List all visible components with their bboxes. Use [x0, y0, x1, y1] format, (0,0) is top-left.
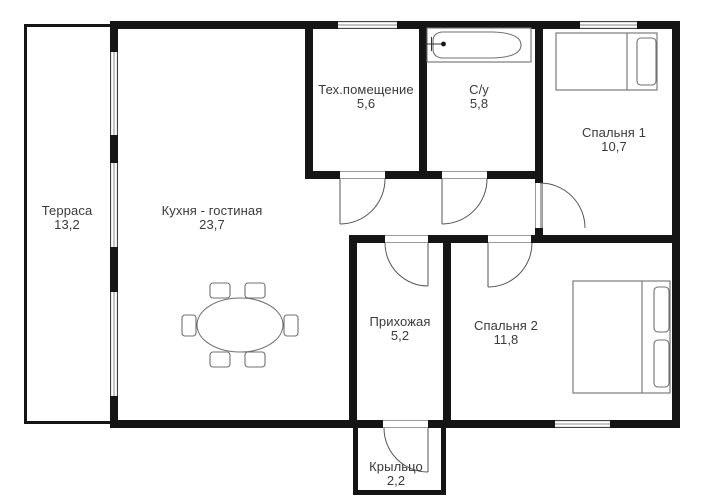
door-arc: [340, 179, 385, 224]
bed-double: [573, 281, 670, 393]
door-opening: [488, 235, 531, 243]
room-area: 2,2: [337, 474, 455, 488]
room-name: Спальня 1: [544, 126, 684, 140]
wall-segment: [24, 421, 110, 424]
door-bedroom-1: [540, 183, 585, 228]
window: [110, 292, 118, 396]
room-label-kitchen-living: Кухня - гостиная 23,7: [142, 204, 282, 232]
room-area: 10,7: [544, 140, 684, 154]
dining-table: [197, 298, 283, 352]
window: [110, 52, 118, 135]
room-label-porch: Крыльцо 2,2: [337, 460, 455, 488]
room-name: Прихожая: [340, 315, 460, 329]
window: [555, 420, 610, 428]
wall-segment: [24, 24, 110, 27]
chair: [210, 352, 230, 367]
bed-single: [556, 33, 657, 90]
door-arc: [488, 243, 532, 287]
room-name: С/у: [419, 83, 539, 97]
room-area: 5,8: [419, 97, 539, 111]
door-tech-room: [340, 179, 385, 224]
door-bedroom-2: [488, 243, 532, 287]
floor-plan-drawing: [0, 0, 724, 502]
door-hallway: [385, 243, 428, 286]
wall-segment: [353, 490, 446, 495]
bathtub: [425, 28, 531, 62]
room-area: 5,2: [340, 329, 460, 343]
floor-plan: Терраса 13,2 Кухня - гостиная 23,7 Тех.п…: [0, 0, 724, 502]
chair: [210, 283, 230, 298]
room-area: 13,2: [7, 218, 127, 232]
room-label-bedroom-1: Спальня 1 10,7: [544, 126, 684, 154]
room-name: Терраса: [7, 204, 127, 218]
room-label-hallway: Прихожая 5,2: [340, 315, 460, 343]
window: [580, 21, 637, 29]
door-opening: [442, 171, 487, 179]
door-arc: [540, 183, 585, 228]
room-name: Крыльцо: [337, 460, 455, 474]
pillow: [654, 287, 669, 332]
door-opening: [383, 420, 428, 428]
chair: [245, 283, 265, 298]
chair: [245, 352, 265, 367]
door-opening: [535, 183, 543, 228]
room-name: Кухня - гостиная: [142, 204, 282, 218]
dining-table-set: [182, 283, 298, 367]
door-opening: [340, 171, 385, 179]
drain-icon: [441, 42, 446, 47]
door-arc: [442, 179, 487, 224]
door-arc: [385, 243, 428, 286]
chair: [182, 315, 196, 336]
chair: [284, 315, 298, 336]
window: [338, 21, 397, 29]
room-label-terrace: Терраса 13,2: [7, 204, 127, 232]
door-opening: [385, 235, 428, 243]
pillow: [637, 38, 656, 85]
door-bathroom: [442, 179, 487, 224]
room-area: 23,7: [142, 218, 282, 232]
room-label-bathroom: С/у 5,8: [419, 83, 539, 111]
wall-segment: [672, 21, 680, 428]
pillow: [654, 340, 669, 387]
